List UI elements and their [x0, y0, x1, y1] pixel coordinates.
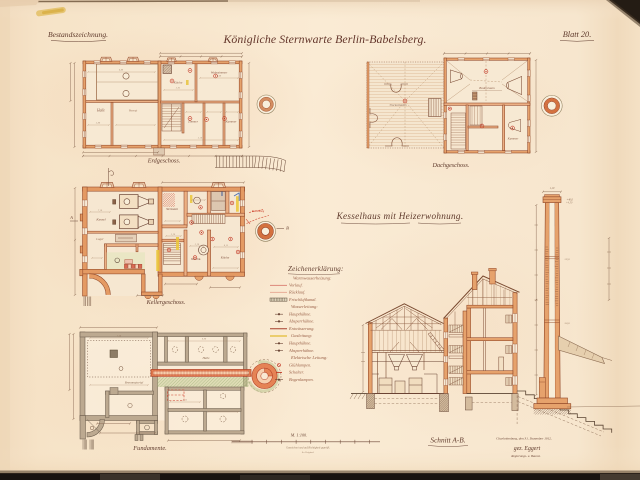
svg-text:Absperrhähne.: Absperrhähne. [288, 319, 314, 324]
svg-text:Brennmaterial: Brennmaterial [125, 381, 144, 385]
svg-text:Schalter.: Schalter. [289, 370, 304, 375]
svg-text:Bestandszeichnung.: Bestandszeichnung. [48, 30, 108, 39]
svg-text:Dachgeschoss.: Dachgeschoss. [432, 162, 470, 169]
svg-text:B: B [286, 226, 289, 231]
svg-text:Absperrhähne.: Absperrhähne. [288, 348, 314, 353]
svg-text:M. 1:100.: M. 1:100. [290, 433, 307, 438]
svg-text:Kammer: Kammer [507, 137, 519, 141]
svg-text:1,10: 1,10 [550, 187, 555, 190]
svg-text:Kesselhaus mit Heizerwohnung.: Kesselhaus mit Heizerwohnung. [336, 211, 464, 221]
svg-text:Im Original.: Im Original. [301, 451, 315, 454]
svg-text:Königliche Sternwarte Berlin-B: Königliche Sternwarte Berlin-Babelsberg. [222, 32, 426, 46]
svg-text:Gezeichnet und auf Richtigkeit: Gezeichnet und auf Richtigkeit geprüft. [286, 447, 330, 450]
svg-text:Warmwasserheizung:: Warmwasserheizung: [293, 275, 332, 280]
svg-text:Zimmer: Zimmer [188, 120, 199, 124]
svg-text:Rücklauf.: Rücklauf. [288, 290, 305, 295]
svg-text:Küche: Küche [173, 81, 183, 85]
svg-text:Vorrat: Vorrat [129, 109, 138, 113]
svg-text:Lager: Lager [95, 237, 104, 241]
svg-text:Bogenlampen.: Bogenlampen. [289, 377, 314, 382]
svg-text:Halle: Halle [96, 109, 105, 113]
svg-text:Zeichenerklärung:: Zeichenerklärung: [288, 265, 344, 273]
svg-text:+32,0: +32,0 [564, 258, 571, 261]
svg-text:Erdgeschoss.: Erdgeschoss. [147, 158, 181, 165]
svg-text:Entwässerung.: Entwässerung. [288, 326, 314, 331]
svg-text:+18,0: +18,0 [564, 322, 571, 325]
svg-text:Blatt 20.: Blatt 20. [563, 30, 592, 39]
svg-text:Schnitt A-B.: Schnitt A-B. [430, 436, 465, 445]
svg-text:gez. Eggert: gez. Eggert [514, 446, 541, 452]
svg-text:Kessel: Kessel [95, 217, 105, 221]
svg-text:Kellergeschoss.: Kellergeschoss. [146, 299, 186, 306]
svg-text:A: A [69, 215, 73, 220]
svg-text:Rohrleitung: Rohrleitung [251, 210, 265, 213]
svg-text:Vorlauf.: Vorlauf. [289, 283, 303, 288]
svg-text:Trockenboden: Trockenboden [389, 103, 407, 107]
svg-text:Gasleitung:: Gasleitung: [291, 333, 313, 338]
svg-text:Küche: Küche [220, 256, 230, 260]
svg-text:Glühlampen.: Glühlampen. [289, 362, 311, 367]
svg-text:Bodenraum: Bodenraum [479, 86, 495, 90]
svg-text:Wasserleitung:: Wasserleitung: [291, 304, 318, 309]
svg-text:Fundamente.: Fundamente. [132, 445, 167, 452]
svg-text:Werkstatt: Werkstatt [166, 207, 178, 211]
svg-text:Halle: Halle [201, 356, 210, 360]
svg-text:Elektrische Leitung:: Elektrische Leitung: [290, 355, 328, 360]
svg-text:Haupthähne.: Haupthähne. [288, 311, 311, 316]
svg-text:Frischluftkanal.: Frischluftkanal. [288, 297, 317, 302]
svg-text:+4,50: +4,50 [566, 202, 573, 205]
svg-text:Kammer: Kammer [225, 120, 238, 124]
svg-text:Regierungs- u. Baurat.: Regierungs- u. Baurat. [510, 454, 540, 458]
svg-text:Haupthähne.: Haupthähne. [288, 341, 311, 346]
